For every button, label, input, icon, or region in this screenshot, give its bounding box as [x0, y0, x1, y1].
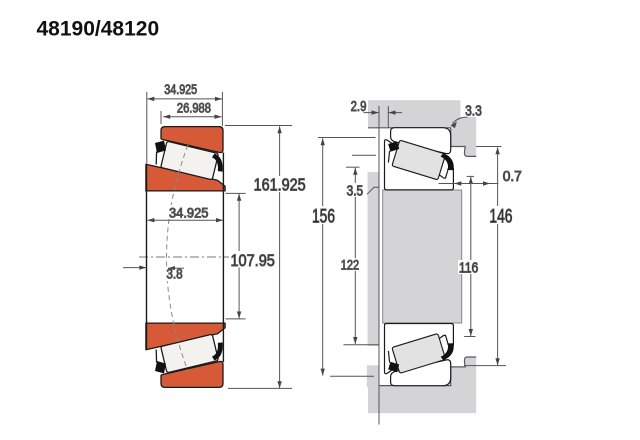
- svg-text:122: 122: [341, 258, 359, 273]
- svg-text:146: 146: [489, 206, 512, 228]
- svg-text:3.8: 3.8: [166, 266, 182, 282]
- svg-text:3.5: 3.5: [347, 184, 364, 200]
- svg-text:161.925: 161.925: [254, 175, 306, 195]
- svg-text:3.3: 3.3: [465, 103, 482, 119]
- svg-text:107.95: 107.95: [231, 251, 275, 270]
- svg-text:116: 116: [459, 260, 478, 277]
- svg-text:26.988: 26.988: [177, 101, 211, 116]
- svg-text:0.7: 0.7: [503, 169, 522, 185]
- svg-text:156: 156: [312, 206, 335, 228]
- svg-text:34.925: 34.925: [164, 82, 197, 97]
- svg-text:48190/48120: 48190/48120: [37, 18, 160, 41]
- svg-text:34.925: 34.925: [169, 204, 209, 220]
- svg-text:2.9: 2.9: [351, 99, 367, 115]
